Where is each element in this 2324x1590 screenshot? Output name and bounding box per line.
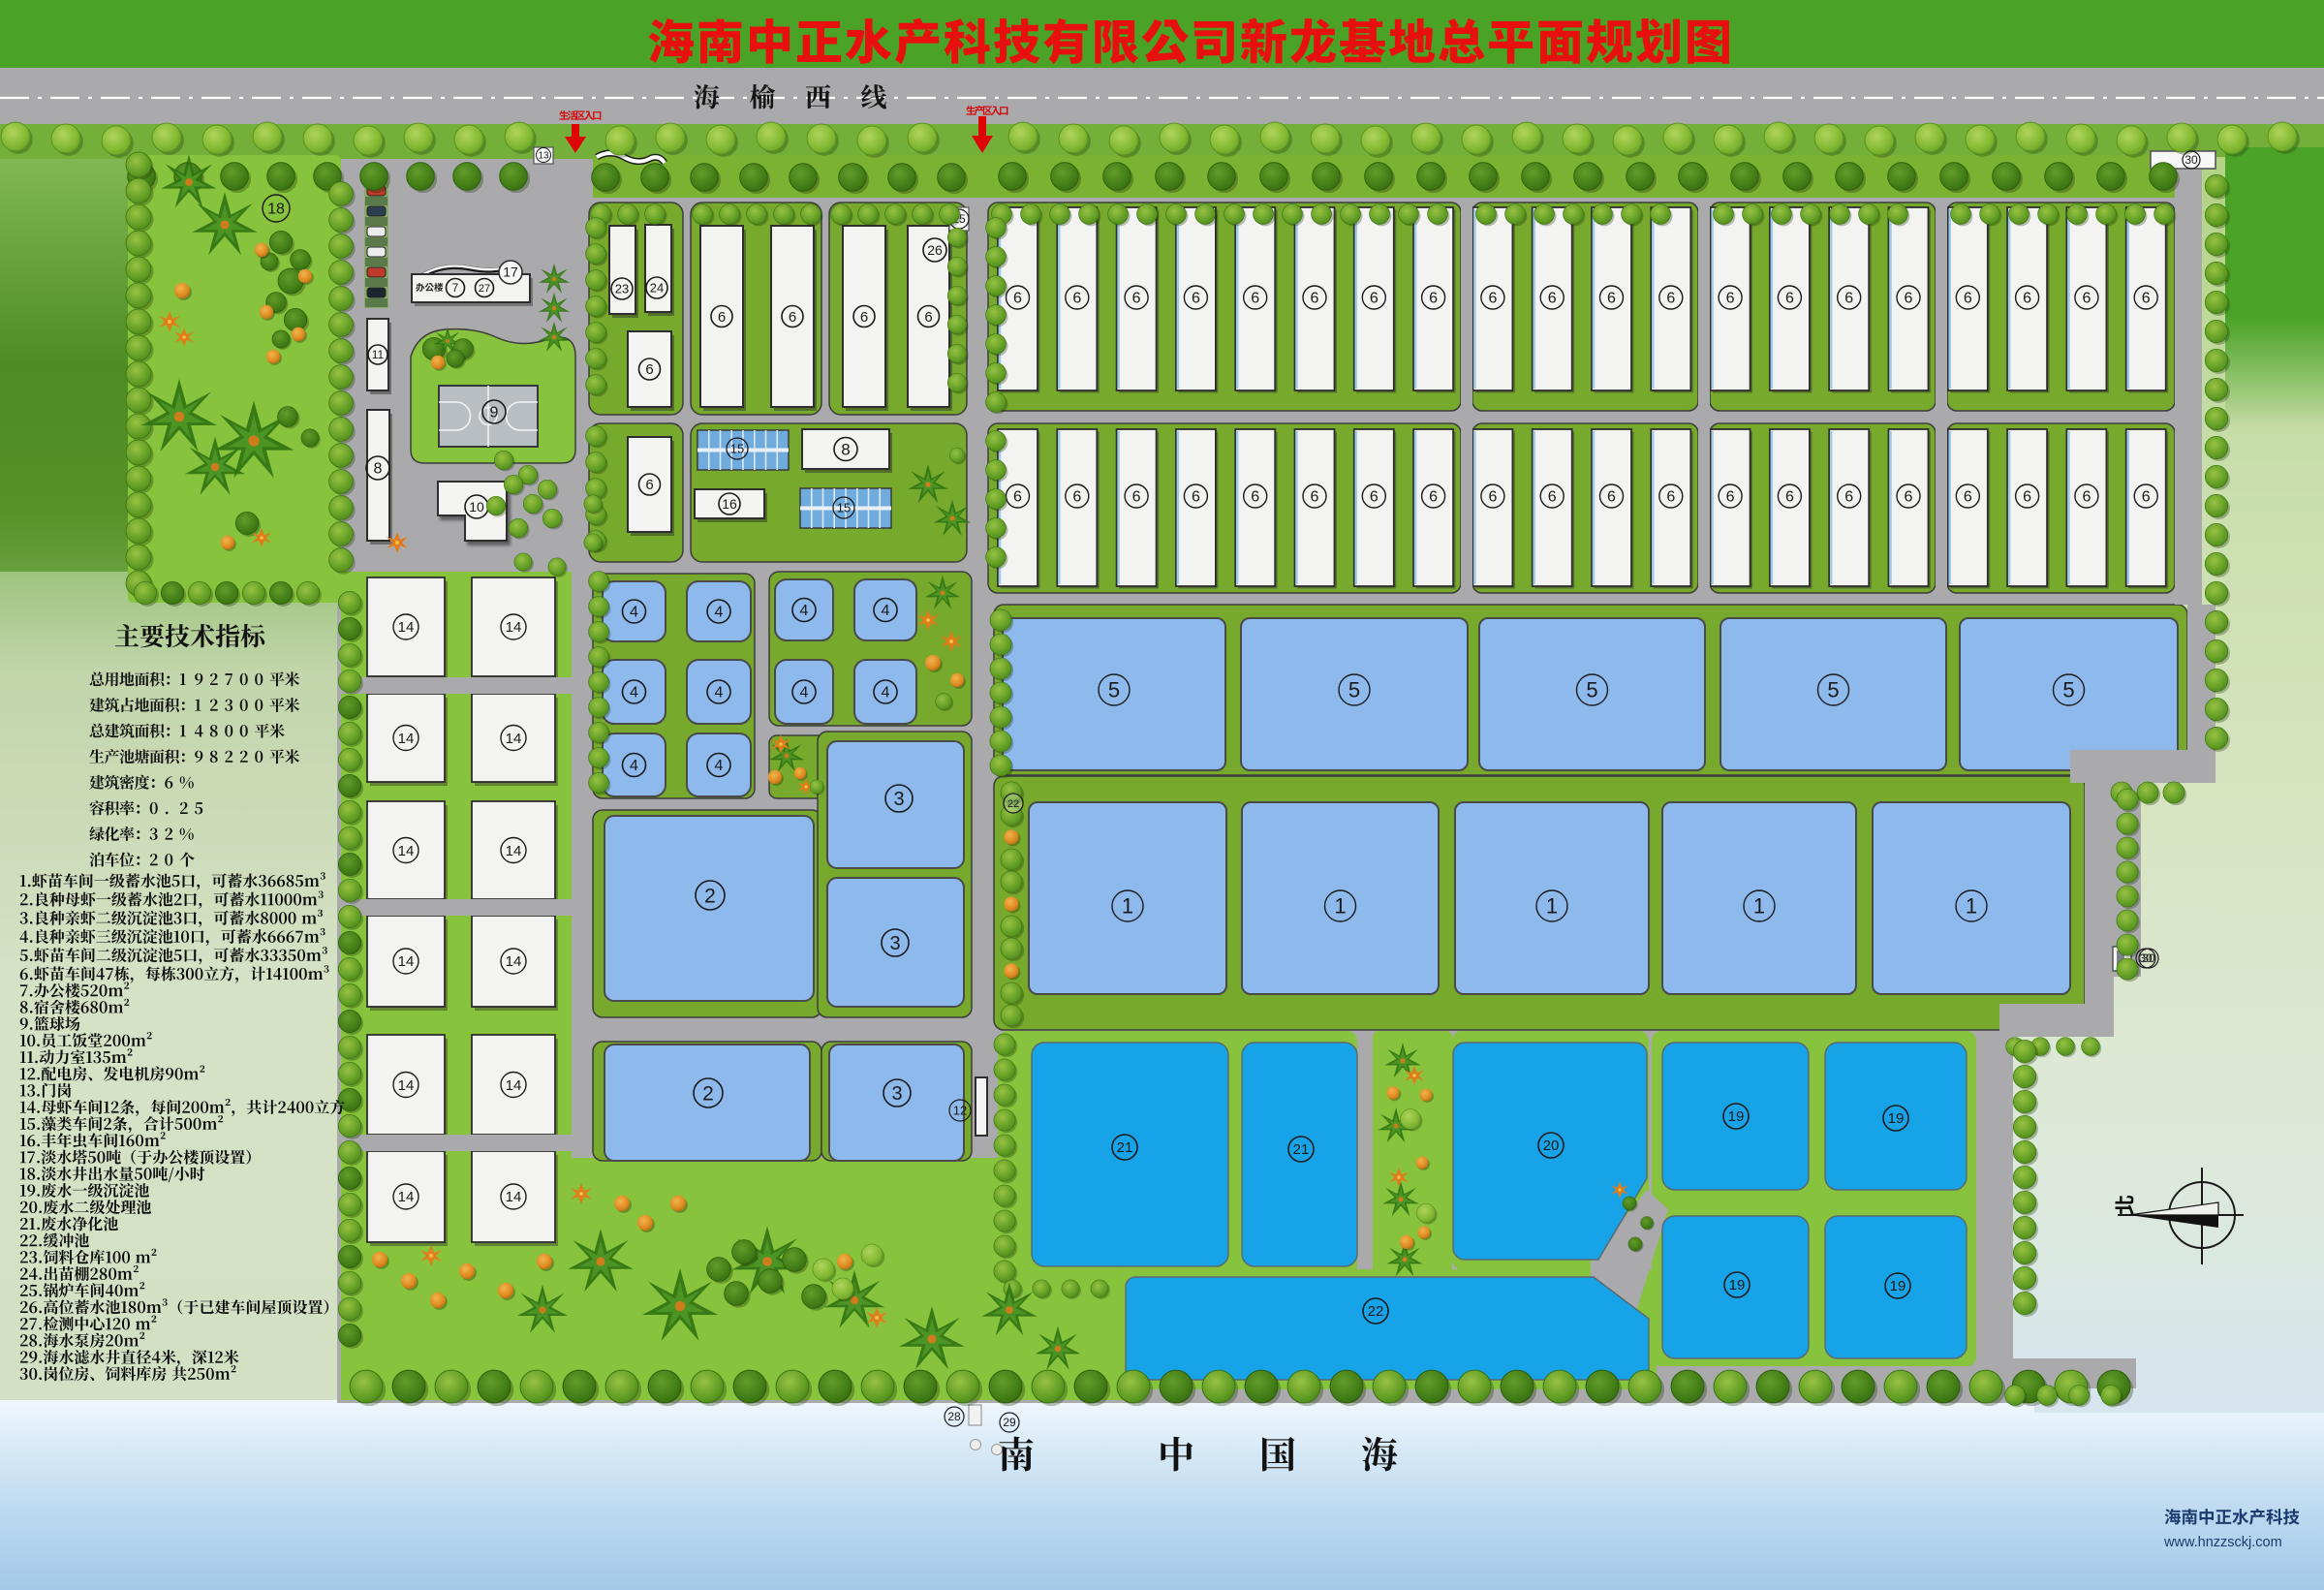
svg-text:14: 14	[506, 843, 522, 859]
svg-text:3: 3	[891, 1083, 902, 1105]
svg-text:4: 4	[715, 605, 724, 621]
svg-text:6: 6	[2142, 291, 2151, 307]
svg-text:8: 8	[374, 461, 383, 478]
svg-text:29: 29	[1003, 1416, 1016, 1429]
svg-text:6: 6	[1132, 489, 1141, 506]
svg-text:6: 6	[1013, 489, 1022, 506]
svg-text:19: 19	[1890, 1278, 1906, 1294]
svg-text:3: 3	[893, 789, 904, 810]
svg-text:13: 13	[538, 151, 549, 162]
svg-text:4: 4	[630, 685, 638, 701]
svg-text:6: 6	[2082, 489, 2091, 506]
svg-text:20: 20	[1543, 1138, 1560, 1154]
svg-text:4: 4	[630, 605, 638, 621]
svg-text:4: 4	[800, 603, 809, 619]
svg-text:6: 6	[1072, 291, 1081, 307]
svg-text:6: 6	[2023, 489, 2031, 506]
svg-text:5: 5	[1827, 678, 1839, 702]
svg-text:2: 2	[702, 1082, 714, 1105]
svg-text:6: 6	[1192, 291, 1200, 307]
svg-text:6: 6	[1132, 291, 1141, 307]
svg-text:6: 6	[1905, 291, 1913, 307]
svg-text:6: 6	[1964, 291, 1972, 307]
svg-text:6: 6	[1726, 291, 1735, 307]
svg-text:1: 1	[1546, 894, 1558, 919]
svg-text:6: 6	[1429, 489, 1438, 506]
svg-text:15: 15	[730, 442, 744, 456]
svg-text:21: 21	[1117, 1139, 1133, 1156]
svg-text:7: 7	[452, 281, 459, 295]
svg-text:6: 6	[860, 309, 868, 326]
svg-text:22: 22	[1007, 798, 1019, 810]
svg-text:19: 19	[1888, 1110, 1905, 1127]
svg-text:www.hnzzsckj.com: www.hnzzsckj.com	[2163, 1535, 2282, 1550]
svg-text:5: 5	[1348, 678, 1360, 702]
svg-text:15: 15	[837, 501, 851, 515]
svg-text:21: 21	[1293, 1141, 1310, 1158]
svg-text:1: 1	[1966, 894, 1977, 919]
svg-text:23: 23	[615, 282, 629, 296]
svg-text:1: 1	[1334, 894, 1346, 919]
svg-text:6: 6	[1844, 489, 1853, 506]
svg-text:6: 6	[645, 361, 653, 378]
svg-text:4: 4	[715, 758, 724, 774]
svg-text:14: 14	[506, 953, 522, 970]
svg-text:6: 6	[1311, 489, 1319, 506]
svg-text:5: 5	[2062, 678, 2074, 702]
svg-text:6: 6	[1964, 489, 1972, 506]
svg-text:11: 11	[372, 348, 385, 361]
svg-text:6: 6	[1726, 489, 1735, 506]
svg-text:6: 6	[1607, 291, 1616, 307]
svg-text:6: 6	[1785, 291, 1794, 307]
svg-text:14: 14	[506, 1077, 522, 1094]
svg-text:28: 28	[947, 1410, 961, 1423]
svg-text:14: 14	[398, 1077, 415, 1094]
svg-text:4: 4	[882, 685, 890, 701]
svg-text:12: 12	[953, 1104, 967, 1118]
svg-text:6: 6	[2082, 291, 2091, 307]
svg-text:10: 10	[469, 499, 484, 514]
svg-text:6: 6	[1905, 489, 1913, 506]
svg-text:6: 6	[1072, 489, 1081, 506]
svg-text:14: 14	[398, 953, 415, 970]
svg-text:4: 4	[882, 603, 890, 619]
svg-text:26: 26	[927, 242, 943, 258]
svg-text:17: 17	[503, 265, 518, 280]
svg-text:6: 6	[1607, 489, 1616, 506]
svg-text:4: 4	[715, 685, 724, 701]
svg-text:14: 14	[398, 843, 415, 859]
svg-text:6: 6	[1488, 291, 1497, 307]
svg-text:6: 6	[1311, 291, 1319, 307]
svg-text:14: 14	[398, 731, 415, 747]
svg-text:19: 19	[1729, 1277, 1746, 1294]
svg-text:14: 14	[506, 1189, 522, 1205]
svg-text:6: 6	[1251, 489, 1259, 506]
svg-text:6: 6	[1370, 291, 1379, 307]
svg-text:19: 19	[1728, 1108, 1745, 1125]
svg-text:6: 6	[1192, 489, 1200, 506]
svg-text:6: 6	[1548, 489, 1557, 506]
svg-text:30: 30	[2185, 153, 2198, 167]
svg-text:6: 6	[1666, 291, 1675, 307]
svg-text:9: 9	[490, 405, 499, 421]
svg-text:6: 6	[924, 309, 932, 326]
svg-text:6: 6	[1251, 291, 1259, 307]
svg-text:6: 6	[718, 309, 726, 326]
svg-text:6: 6	[1785, 489, 1794, 506]
svg-text:14: 14	[506, 619, 522, 636]
svg-text:24: 24	[650, 281, 664, 296]
svg-text:6: 6	[2023, 291, 2031, 307]
svg-text:6: 6	[1013, 291, 1022, 307]
svg-text:14: 14	[398, 619, 415, 636]
svg-text:6: 6	[2142, 489, 2151, 506]
svg-text:1: 1	[1122, 894, 1133, 919]
svg-text:27: 27	[479, 283, 490, 295]
svg-text:22: 22	[1368, 1303, 1384, 1320]
svg-text:16: 16	[722, 496, 737, 512]
svg-text:6: 6	[1844, 291, 1853, 307]
svg-text:14: 14	[398, 1189, 415, 1205]
svg-text:30: 30	[2142, 951, 2155, 965]
svg-text:8: 8	[841, 440, 850, 458]
svg-text:6: 6	[1548, 291, 1557, 307]
svg-text:6: 6	[1370, 489, 1379, 506]
svg-text:6: 6	[1429, 291, 1438, 307]
svg-text:3: 3	[889, 933, 900, 954]
svg-text:14: 14	[506, 731, 522, 747]
svg-text:2: 2	[704, 885, 716, 907]
svg-text:5: 5	[1586, 678, 1597, 702]
svg-text:4: 4	[800, 685, 809, 701]
svg-text:5: 5	[1108, 678, 1120, 702]
svg-text:6: 6	[1488, 489, 1497, 506]
svg-text:1: 1	[1753, 894, 1765, 919]
svg-text:6: 6	[645, 477, 653, 493]
svg-text:18: 18	[267, 202, 285, 218]
svg-text:6: 6	[789, 309, 796, 326]
svg-text:4: 4	[630, 758, 638, 774]
svg-text:6: 6	[1666, 489, 1675, 506]
